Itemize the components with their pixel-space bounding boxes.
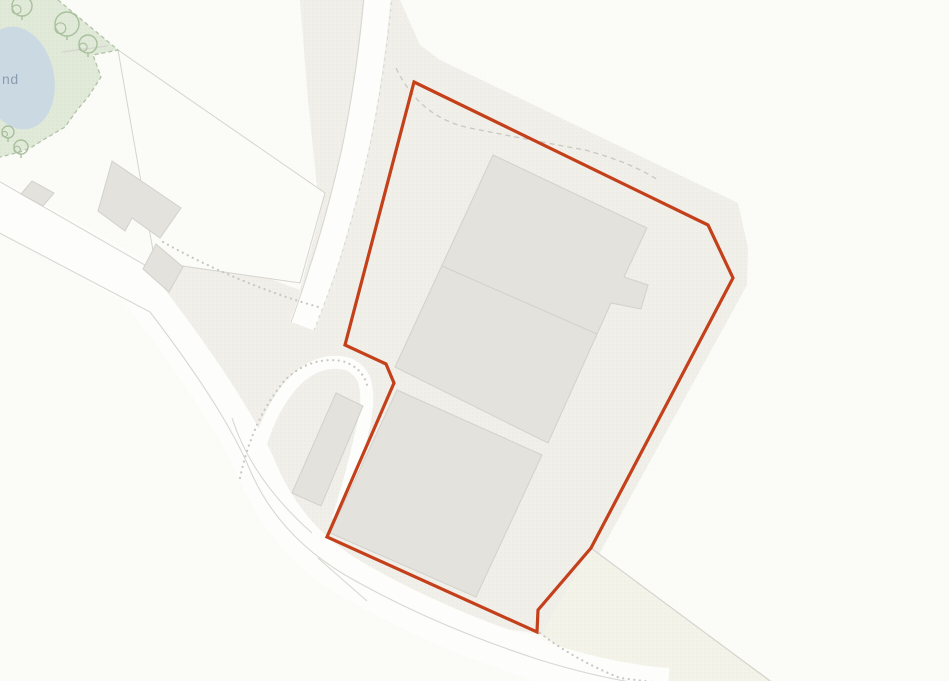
pond-label: nd (2, 71, 19, 87)
map-viewport[interactable]: nd (0, 0, 949, 681)
map-canvas: nd (0, 0, 949, 681)
